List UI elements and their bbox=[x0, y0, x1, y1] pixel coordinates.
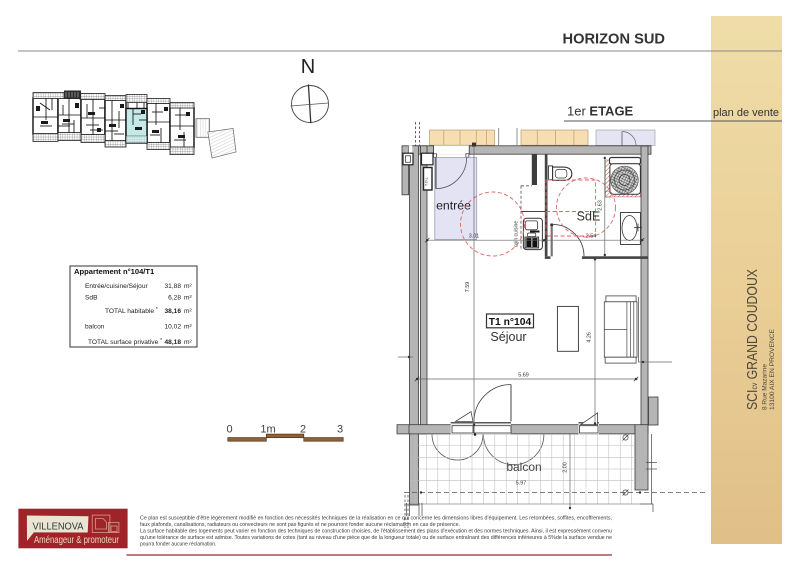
svg-text:TOTAL habitable *: TOTAL habitable * bbox=[105, 307, 158, 315]
svg-text:0: 0 bbox=[226, 424, 232, 436]
svg-text:TOTAL surface privative *: TOTAL surface privative * bbox=[88, 338, 162, 346]
svg-text:3: 3 bbox=[337, 424, 343, 436]
svg-text:HORIZON SUD: HORIZON SUD bbox=[563, 31, 666, 48]
svg-text:2.00: 2.00 bbox=[563, 462, 569, 473]
svg-text:8 Rue Mazarine: 8 Rue Mazarine bbox=[762, 364, 769, 410]
svg-text:qu'une tolérance de surface es: qu'une tolérance de surface est admise. … bbox=[140, 535, 612, 541]
svg-text:Ce plan est susceptible d'être: Ce plan est susceptible d'être légèremen… bbox=[140, 516, 612, 522]
svg-text:Appartement n°104/T1: Appartement n°104/T1 bbox=[74, 267, 155, 276]
svg-text:5.69: 5.69 bbox=[518, 372, 529, 378]
svg-text:N: N bbox=[301, 56, 315, 78]
svg-text:3.01: 3.01 bbox=[469, 233, 480, 239]
svg-text:10,02: 10,02 bbox=[164, 324, 181, 331]
svg-text:m²: m² bbox=[184, 295, 192, 302]
svg-text:entrée: entrée bbox=[436, 199, 471, 213]
svg-text:31,88: 31,88 bbox=[164, 283, 181, 290]
svg-text:Entrée/cuisine/Séjour: Entrée/cuisine/Séjour bbox=[85, 283, 148, 290]
svg-text:48,18: 48,18 bbox=[164, 339, 181, 346]
svg-text:13100 AIX EN PROVENCE: 13100 AIX EN PROVENCE bbox=[769, 329, 776, 410]
svg-text:T.O.L: T.O.L bbox=[425, 177, 429, 186]
svg-text:balcon: balcon bbox=[85, 324, 105, 331]
svg-text:2: 2 bbox=[300, 424, 306, 436]
svg-text:Séjour: Séjour bbox=[490, 330, 526, 344]
svg-text:m²: m² bbox=[184, 283, 192, 290]
svg-text:38,16: 38,16 bbox=[164, 308, 181, 315]
svg-text:2.63: 2.63 bbox=[598, 200, 604, 211]
svg-text:1er ETAGE: 1er ETAGE bbox=[567, 104, 634, 119]
svg-text:T1 n°104: T1 n°104 bbox=[489, 317, 532, 328]
svg-text:7.59: 7.59 bbox=[465, 282, 471, 293]
svg-text:SdB: SdB bbox=[85, 295, 98, 302]
svg-text:m²: m² bbox=[184, 308, 192, 315]
svg-text:m²: m² bbox=[184, 324, 192, 331]
svg-text:pourra fonder aucune réclamati: pourra fonder aucune réclamation. bbox=[140, 542, 216, 548]
svg-text:faux plafonds, canalisations,: faux plafonds, canalisations, radiateurs… bbox=[140, 522, 460, 528]
svg-text:1m: 1m bbox=[260, 424, 275, 436]
svg-text:m²: m² bbox=[184, 339, 192, 346]
svg-text:6,28: 6,28 bbox=[168, 295, 181, 302]
svg-text:Aménageur & promoteur: Aménageur & promoteur bbox=[34, 535, 119, 546]
svg-text:VILLENOVA: VILLENOVA bbox=[33, 522, 84, 533]
svg-text:balcon: balcon bbox=[506, 460, 541, 474]
svg-text:5.97: 5.97 bbox=[516, 481, 527, 487]
svg-text:La surface habitable des logem: La surface habitable des logements peut … bbox=[140, 529, 612, 535]
svg-text:2.54: 2.54 bbox=[586, 234, 597, 240]
svg-text:plan de vente: plan de vente bbox=[713, 107, 779, 119]
svg-text:4.26: 4.26 bbox=[587, 332, 593, 343]
